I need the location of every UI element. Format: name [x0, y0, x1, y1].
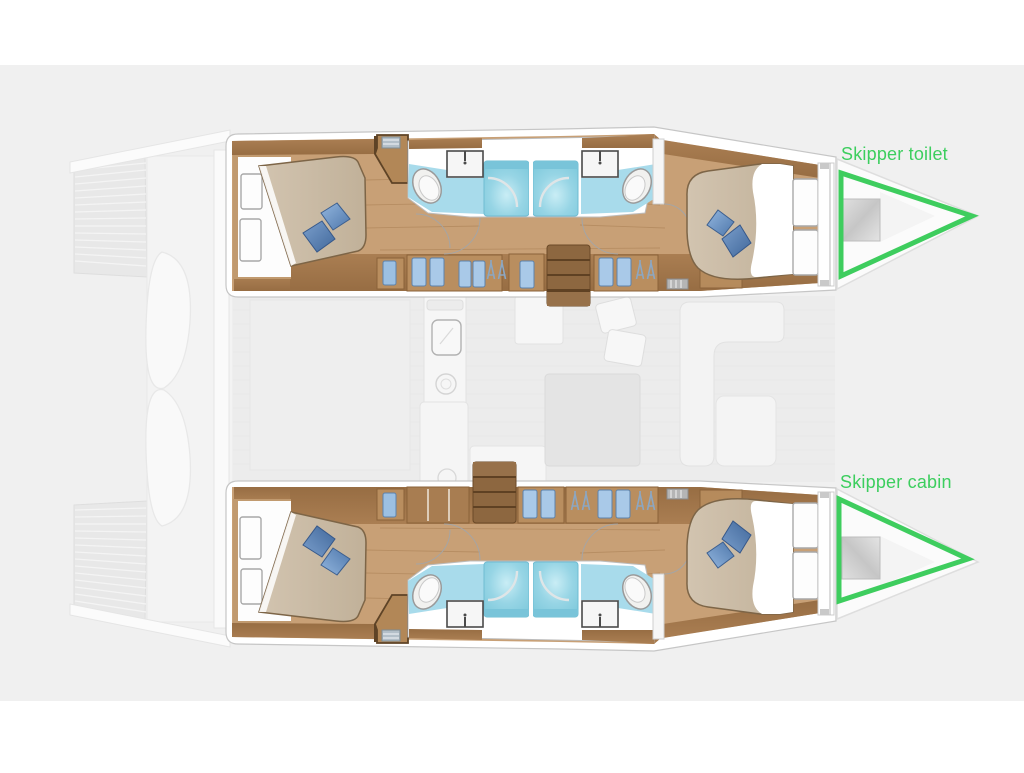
svg-text:Skipper toilet: Skipper toilet	[841, 144, 948, 164]
svg-text:Skipper cabin: Skipper cabin	[840, 472, 952, 492]
